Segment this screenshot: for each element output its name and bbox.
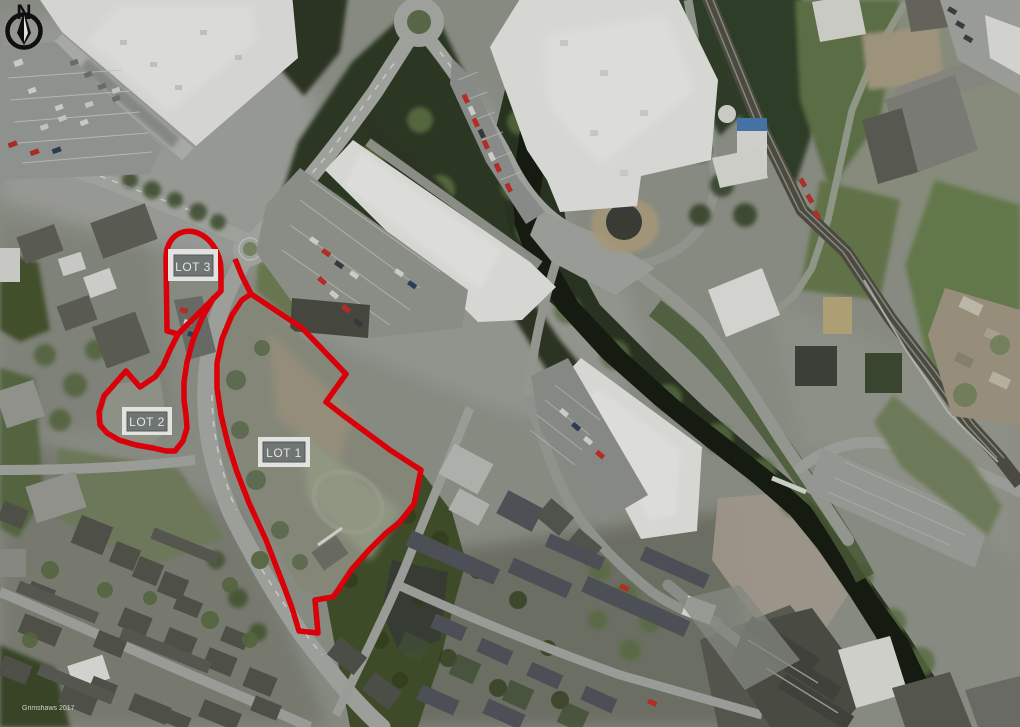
svg-text:Grimshaws 2017: Grimshaws 2017 <box>22 705 75 712</box>
